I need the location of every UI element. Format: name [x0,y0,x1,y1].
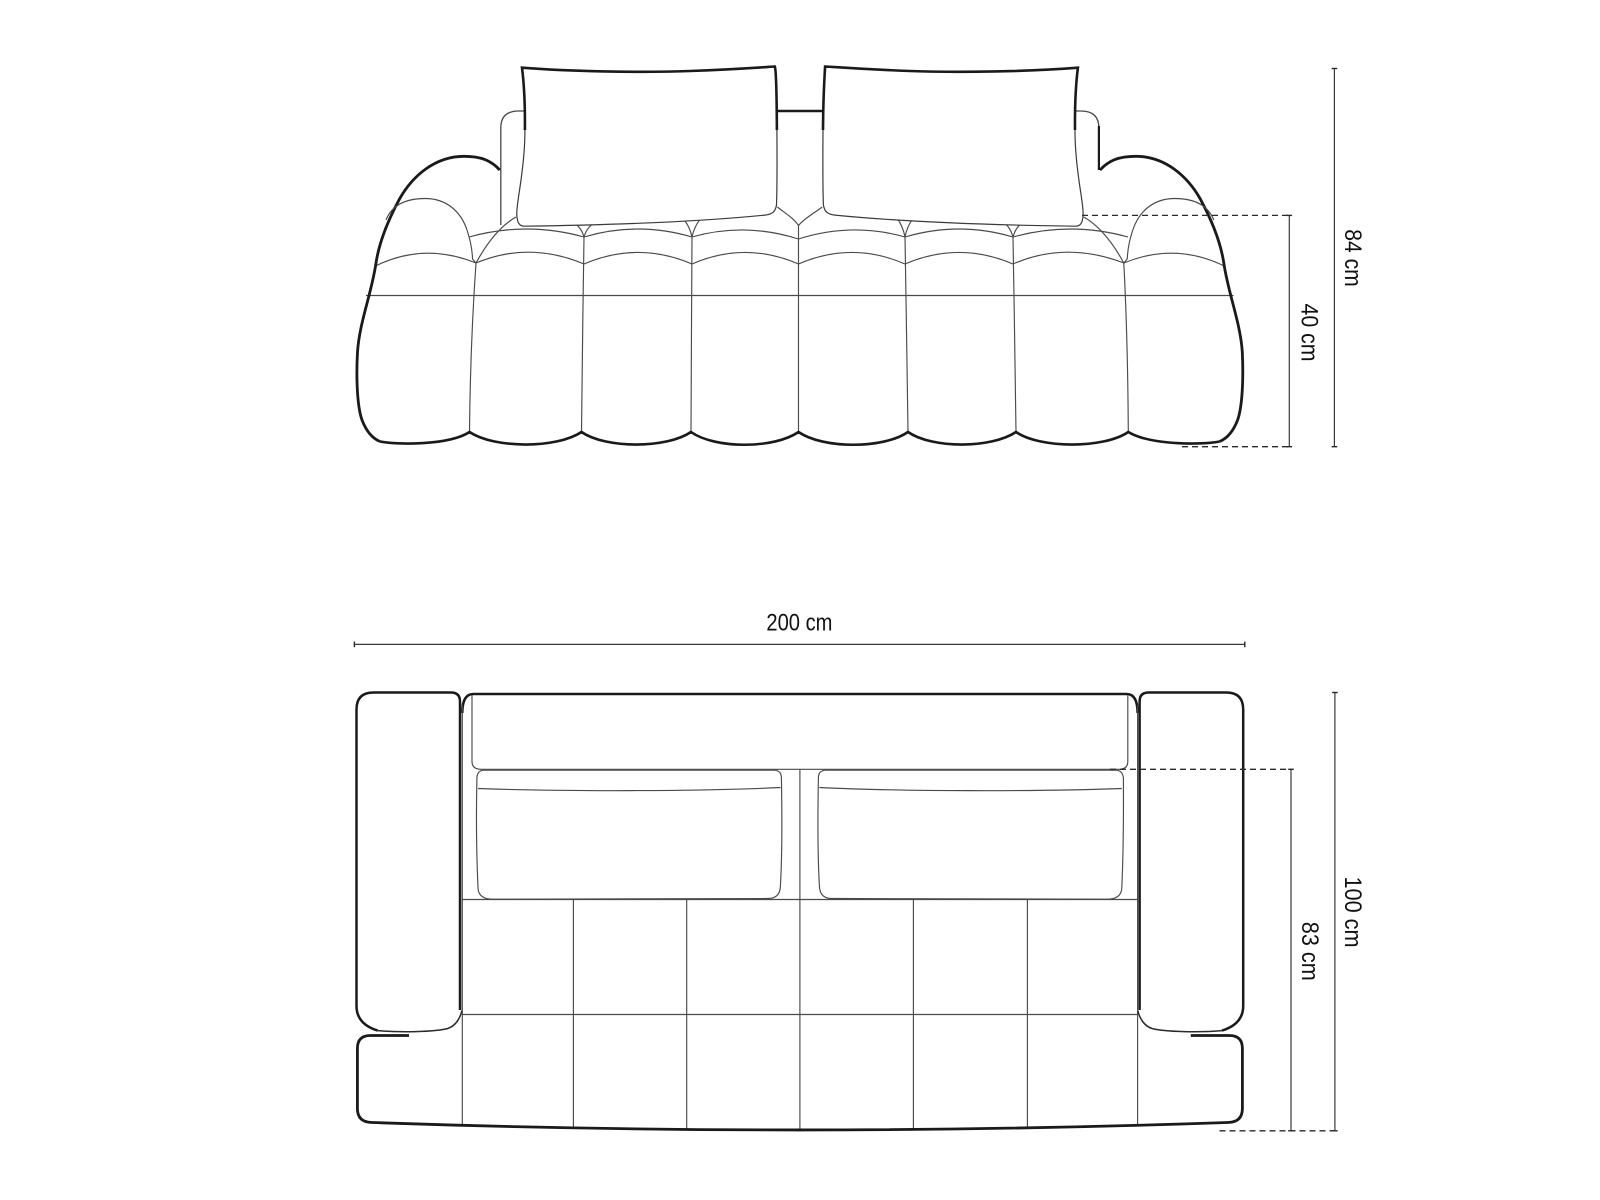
svg-text:84 cm: 84 cm [1339,229,1366,287]
svg-text:200 cm: 200 cm [766,610,832,637]
svg-text:83 cm: 83 cm [1296,922,1323,981]
svg-text:40 cm: 40 cm [1296,304,1323,362]
svg-text:100 cm: 100 cm [1339,877,1366,948]
